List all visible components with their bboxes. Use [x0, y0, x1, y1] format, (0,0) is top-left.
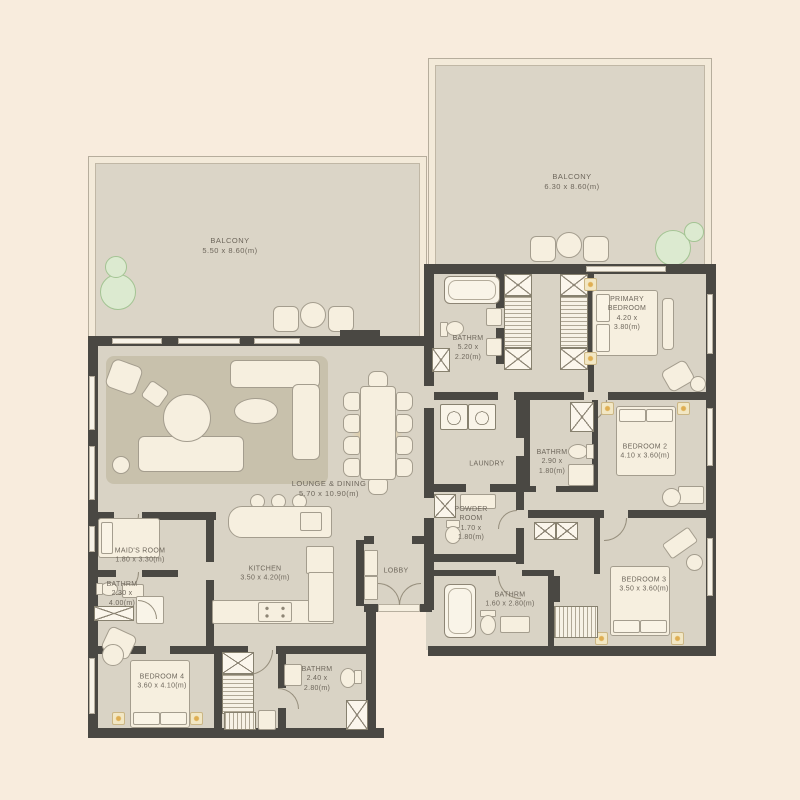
label-line: KITCHEN [240, 565, 289, 574]
closet-icon [222, 674, 254, 714]
side-table-icon [102, 644, 124, 666]
label-line: 5.20 x [453, 343, 484, 352]
sink-icon [300, 512, 322, 531]
vanity-cabinet-icon [94, 606, 134, 621]
label-line: LAUNDRY [469, 459, 504, 468]
label-line: 3.50 x 3.60(m) [619, 585, 668, 594]
toilet-icon [480, 615, 496, 635]
pillow-icon [613, 620, 640, 633]
window-icon [707, 408, 713, 466]
room-label-bathrm-maids: BATHRM 2.30 x 4.00(m) [107, 580, 138, 608]
outdoor-table-icon [300, 302, 326, 328]
shower-icon [432, 348, 450, 372]
wall [434, 392, 716, 400]
label-line: BEDROOM 2 [620, 443, 669, 452]
label-line: 2.20(m) [453, 353, 484, 362]
chair-icon [343, 458, 360, 477]
closet-icon [222, 652, 254, 674]
door-opening [584, 392, 608, 400]
wall-light-icon [671, 632, 684, 645]
window-icon [178, 338, 240, 344]
label-line: 1.60 x 2.80(m) [485, 600, 534, 609]
door-opening [516, 438, 524, 456]
door-opening [536, 486, 556, 492]
label-line: BEDROOM 4 [137, 673, 186, 682]
label-line: MAID'S ROOM [115, 547, 166, 556]
chair-icon [662, 488, 681, 507]
room-label-bathrm-bed4: BATHRM 2.40 x 2.80(m) [302, 665, 333, 693]
label-line: 2.30 x [107, 589, 138, 598]
wall-light-icon [190, 712, 203, 725]
outdoor-chair-icon [530, 236, 556, 262]
pillow-icon [101, 522, 113, 554]
sink-icon [486, 338, 502, 356]
dining-table-icon [360, 386, 396, 480]
label-line: BATHRM [537, 448, 568, 457]
label-line: 2.90 x [537, 457, 568, 466]
label-line: 5.70 x 10.90(m) [292, 489, 367, 499]
tall-cabinet-icon [364, 550, 378, 576]
toilet-icon [568, 444, 588, 459]
pillow-icon [640, 620, 667, 633]
label-line: 1.80 x 3.30(m) [115, 556, 166, 565]
door-opening [498, 392, 514, 400]
plant-icon [684, 222, 704, 242]
room-label-powder-room: POWDER ROOM 1.70 x 1.80(m) [454, 505, 487, 543]
label-line: ROOM [454, 515, 487, 524]
label-line: 4.10 x 3.60(m) [620, 452, 669, 461]
door-opening [206, 562, 214, 580]
wall-light-icon [112, 712, 125, 725]
kitchen-counter-icon [308, 572, 334, 622]
label-line: 1.80(m) [454, 533, 487, 542]
door-opening [516, 510, 524, 528]
label-line: 3.60 x 4.10(m) [137, 682, 186, 691]
window-icon [89, 446, 95, 500]
closet-icon [554, 606, 598, 638]
wall-column [548, 576, 560, 602]
pillow-icon [619, 409, 646, 422]
label-line: PRIMARY [608, 295, 646, 304]
toilet-tank-icon [96, 583, 103, 595]
label-line: 5.50 x 8.60(m) [202, 246, 257, 256]
side-table-icon [112, 456, 130, 474]
closet-icon [224, 712, 256, 730]
chair-icon [396, 436, 413, 455]
outdoor-table-icon [556, 232, 582, 258]
closet-icon [560, 296, 588, 348]
room-label-maids-room: MAID'S ROOM 1.80 x 3.30(m) [115, 547, 166, 566]
window-icon [707, 294, 713, 354]
room-label-laundry: LAUNDRY [469, 459, 504, 468]
room-label-lobby: LOBBY [384, 566, 409, 575]
shower-icon [434, 494, 456, 518]
closet-icon [504, 348, 532, 370]
shower-icon [346, 700, 368, 730]
chair-icon [368, 479, 388, 495]
closet-icon [504, 296, 532, 348]
chair-icon [343, 392, 360, 411]
wall [356, 540, 364, 606]
window-icon [89, 376, 95, 430]
wall [412, 536, 426, 544]
label-line: 3.80(m) [608, 323, 646, 332]
label-line: BALCONY [544, 172, 599, 182]
kitchen-counter-icon [306, 546, 334, 574]
desk-icon [678, 486, 704, 504]
label-line: LOUNGE & DINING [292, 479, 367, 489]
dryer-icon [468, 404, 496, 430]
wall [428, 264, 716, 274]
wall [428, 570, 554, 576]
window-icon [89, 526, 95, 552]
room-label-kitchen: KITCHEN 3.50 x 4.20(m) [240, 565, 289, 584]
chair-icon [368, 371, 388, 387]
label-line: BATHRM [485, 591, 534, 600]
coffee-table-icon [163, 394, 211, 442]
bench-icon [662, 298, 674, 350]
wall-column [340, 330, 380, 346]
toilet-tank-icon [586, 444, 594, 459]
window-icon [89, 658, 95, 714]
chair-icon [686, 554, 703, 571]
sink-icon [284, 664, 302, 686]
sink-icon [500, 616, 530, 633]
sofa-icon [292, 384, 320, 460]
door-opening [604, 510, 628, 518]
window-icon [112, 338, 162, 344]
plant-icon [100, 274, 136, 310]
door-opening [424, 386, 434, 408]
wall [428, 646, 716, 656]
oval-table-icon [234, 398, 278, 424]
wall [214, 646, 222, 736]
closet-icon [534, 522, 556, 540]
chair-icon [396, 414, 413, 433]
outdoor-chair-icon [273, 306, 299, 332]
washer-icon [440, 404, 468, 430]
label-line: 3.50 x 4.20(m) [240, 574, 289, 583]
chair-icon [343, 414, 360, 433]
wall [420, 604, 432, 612]
pillow-icon [160, 712, 187, 725]
wall-light-icon [584, 278, 597, 291]
label-line: BATHRM [107, 580, 138, 589]
room-label-primary-bedroom: PRIMARY BEDROOM 4.20 x 3.80(m) [608, 295, 646, 333]
label-line: BATHRM [453, 334, 484, 343]
wall-light-icon [601, 402, 614, 415]
tall-cabinet-icon [364, 576, 378, 600]
cabinet-icon [258, 710, 276, 730]
outdoor-chair-icon [583, 236, 609, 262]
closet-icon [556, 522, 578, 540]
room-label-bathrm-bed3: BATHRM 1.60 x 2.80(m) [485, 591, 534, 610]
pillow-icon [133, 712, 160, 725]
sink-icon [486, 308, 502, 326]
wall [524, 400, 530, 492]
label-line: BEDROOM 3 [619, 576, 668, 585]
wall [206, 512, 214, 648]
chair-icon [396, 392, 413, 411]
room-label-bedroom2: BEDROOM 2 4.10 x 3.60(m) [620, 443, 669, 462]
door-opening [466, 484, 490, 492]
chair-icon [396, 458, 413, 477]
outdoor-chair-icon [328, 306, 354, 332]
room-label-bedroom3: BEDROOM 3 3.50 x 3.60(m) [619, 576, 668, 595]
wall [516, 400, 524, 564]
wall [594, 518, 600, 574]
shower-icon [570, 402, 594, 432]
window-icon [707, 538, 713, 596]
label-line: 4.20 x [608, 314, 646, 323]
bathtub-icon [444, 584, 476, 638]
label-line: 6.30 x 8.60(m) [544, 182, 599, 192]
label-line: BEDROOM [608, 305, 646, 314]
label-line: POWDER [454, 505, 487, 514]
wall [432, 554, 518, 562]
room-label-bathrm-bed2: BATHRM 2.90 x 1.80(m) [537, 448, 568, 476]
toilet-tank-icon [354, 670, 362, 684]
label-line: LOBBY [384, 566, 409, 575]
window-icon [254, 338, 300, 344]
label-line: 4.00(m) [107, 599, 138, 608]
window-icon [586, 266, 666, 272]
room-label-balcony-right: BALCONY 6.30 x 8.60(m) [544, 172, 599, 192]
bathtub-icon [444, 276, 500, 304]
label-line: 1.70 x [454, 524, 487, 533]
chair-icon [343, 436, 360, 455]
label-line: 1.80(m) [537, 467, 568, 476]
closet-icon [504, 274, 532, 296]
wall [364, 536, 374, 544]
cooktop-icon [258, 602, 292, 622]
plant-icon [105, 256, 127, 278]
room-label-balcony-left: BALCONY 5.50 x 8.60(m) [202, 236, 257, 256]
label-line: BATHRM [302, 665, 333, 674]
wall-light-icon [677, 402, 690, 415]
door-opening [424, 498, 434, 518]
sink-icon [568, 464, 594, 486]
floor-plan: BALCONY 5.50 x 8.60(m) BALCONY 6.30 x 8.… [0, 0, 800, 800]
entry-door-opening [378, 604, 420, 612]
pillow-icon [646, 409, 673, 422]
side-table-icon [690, 376, 706, 392]
label-line: 2.80(m) [302, 684, 333, 693]
label-line: BALCONY [202, 236, 257, 246]
wall [424, 264, 434, 566]
room-label-bathrm-primary: BATHRM 5.20 x 2.20(m) [453, 334, 484, 362]
label-line: 2.40 x [302, 674, 333, 683]
room-label-lounge-dining: LOUNGE & DINING 5.70 x 10.90(m) [292, 479, 367, 499]
room-label-bedroom4: BEDROOM 4 3.60 x 4.10(m) [137, 673, 186, 692]
door-opening [146, 646, 170, 654]
wall-light-icon [584, 352, 597, 365]
